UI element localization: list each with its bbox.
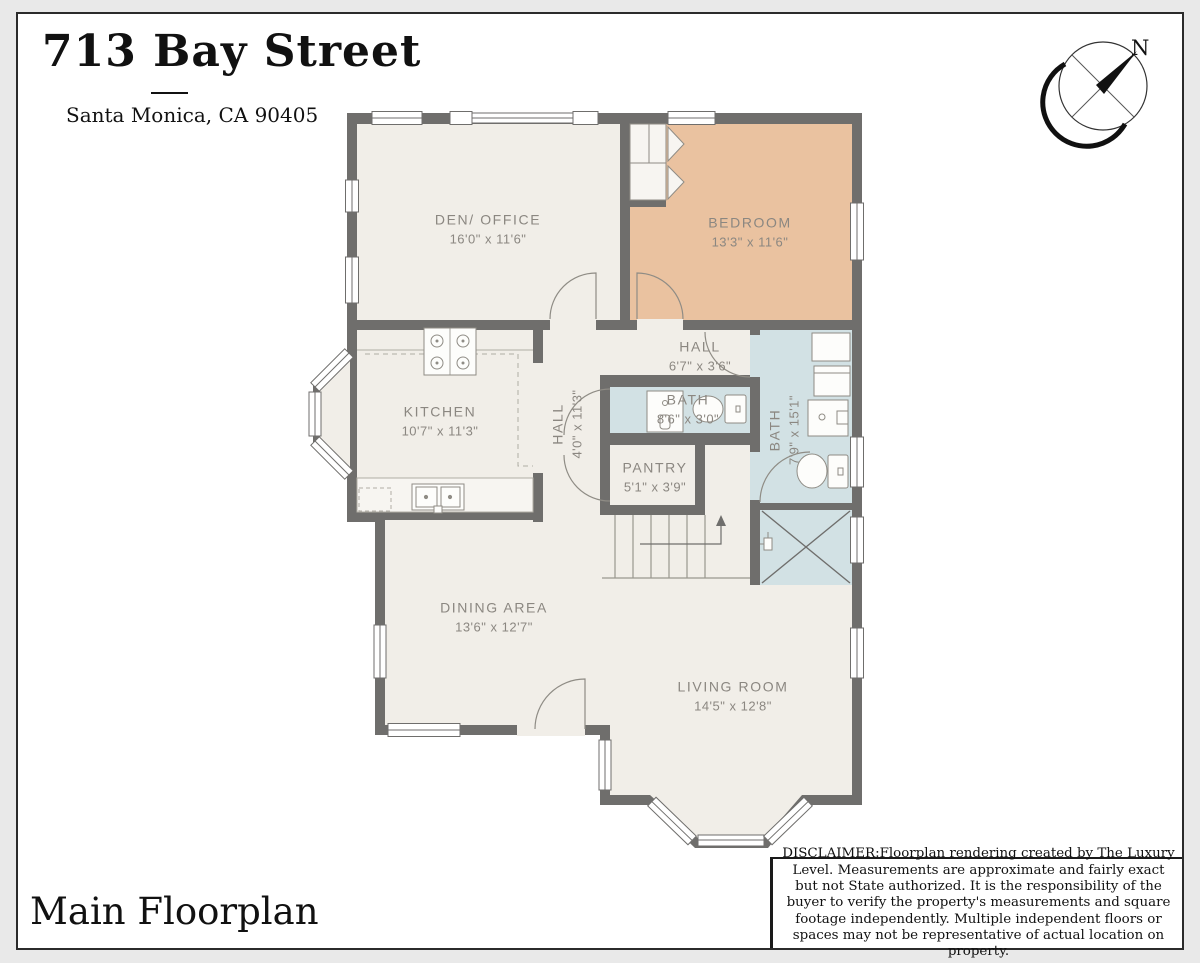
- room-label-den-office: DEN/ OFFICE 16'0" x 11'6": [435, 212, 541, 247]
- disclaimer-text: DISCLAIMER:Floorplan rendering created b…: [773, 844, 1182, 962]
- toilet-icon: [797, 454, 848, 488]
- floorplan-drawing: [0, 0, 1200, 963]
- washer-icon: [814, 366, 850, 396]
- compass-north-label: N: [1131, 36, 1149, 60]
- room-label-living-room: LIVING ROOM 14'5" x 12'8": [678, 679, 789, 714]
- room-label-hall-upper: HALL 6'7" x 3'6": [669, 339, 731, 374]
- floorplan-page: 713 Bay Street Santa Monica, CA 90405 N …: [0, 0, 1200, 963]
- title-underline: [151, 92, 188, 94]
- plan-title: Main Floorplan: [30, 890, 319, 933]
- room-label-bath-small: BATH 8'6" x 3'0": [657, 392, 719, 427]
- room-label-kitchen: KITCHEN 10'7" x 11'3": [402, 404, 479, 439]
- page-title: 713 Bay Street: [42, 26, 421, 77]
- room-label-bedroom: BEDROOM 13'3" x 11'6": [708, 215, 792, 250]
- room-label-hall-lower: HALL 4'0" x 11'3": [550, 389, 585, 458]
- vanity-sink-icon: [808, 400, 848, 436]
- room-label-dining-area: DINING AREA 13'6" x 12'7": [440, 600, 548, 635]
- room-label-pantry: PANTRY 5'1" x 3'9": [622, 460, 687, 495]
- stove-icon: [424, 328, 476, 375]
- page-subtitle: Santa Monica, CA 90405: [66, 103, 318, 127]
- room-label-bath-large: BATH 7'9" x 15'1": [767, 395, 802, 465]
- bath-vestibule-floor: [705, 445, 750, 515]
- disclaimer-box: DISCLAIMER:Floorplan rendering created b…: [770, 857, 1182, 948]
- kitchen-sink-icon: [412, 484, 464, 513]
- cabinet-icon: [812, 333, 850, 361]
